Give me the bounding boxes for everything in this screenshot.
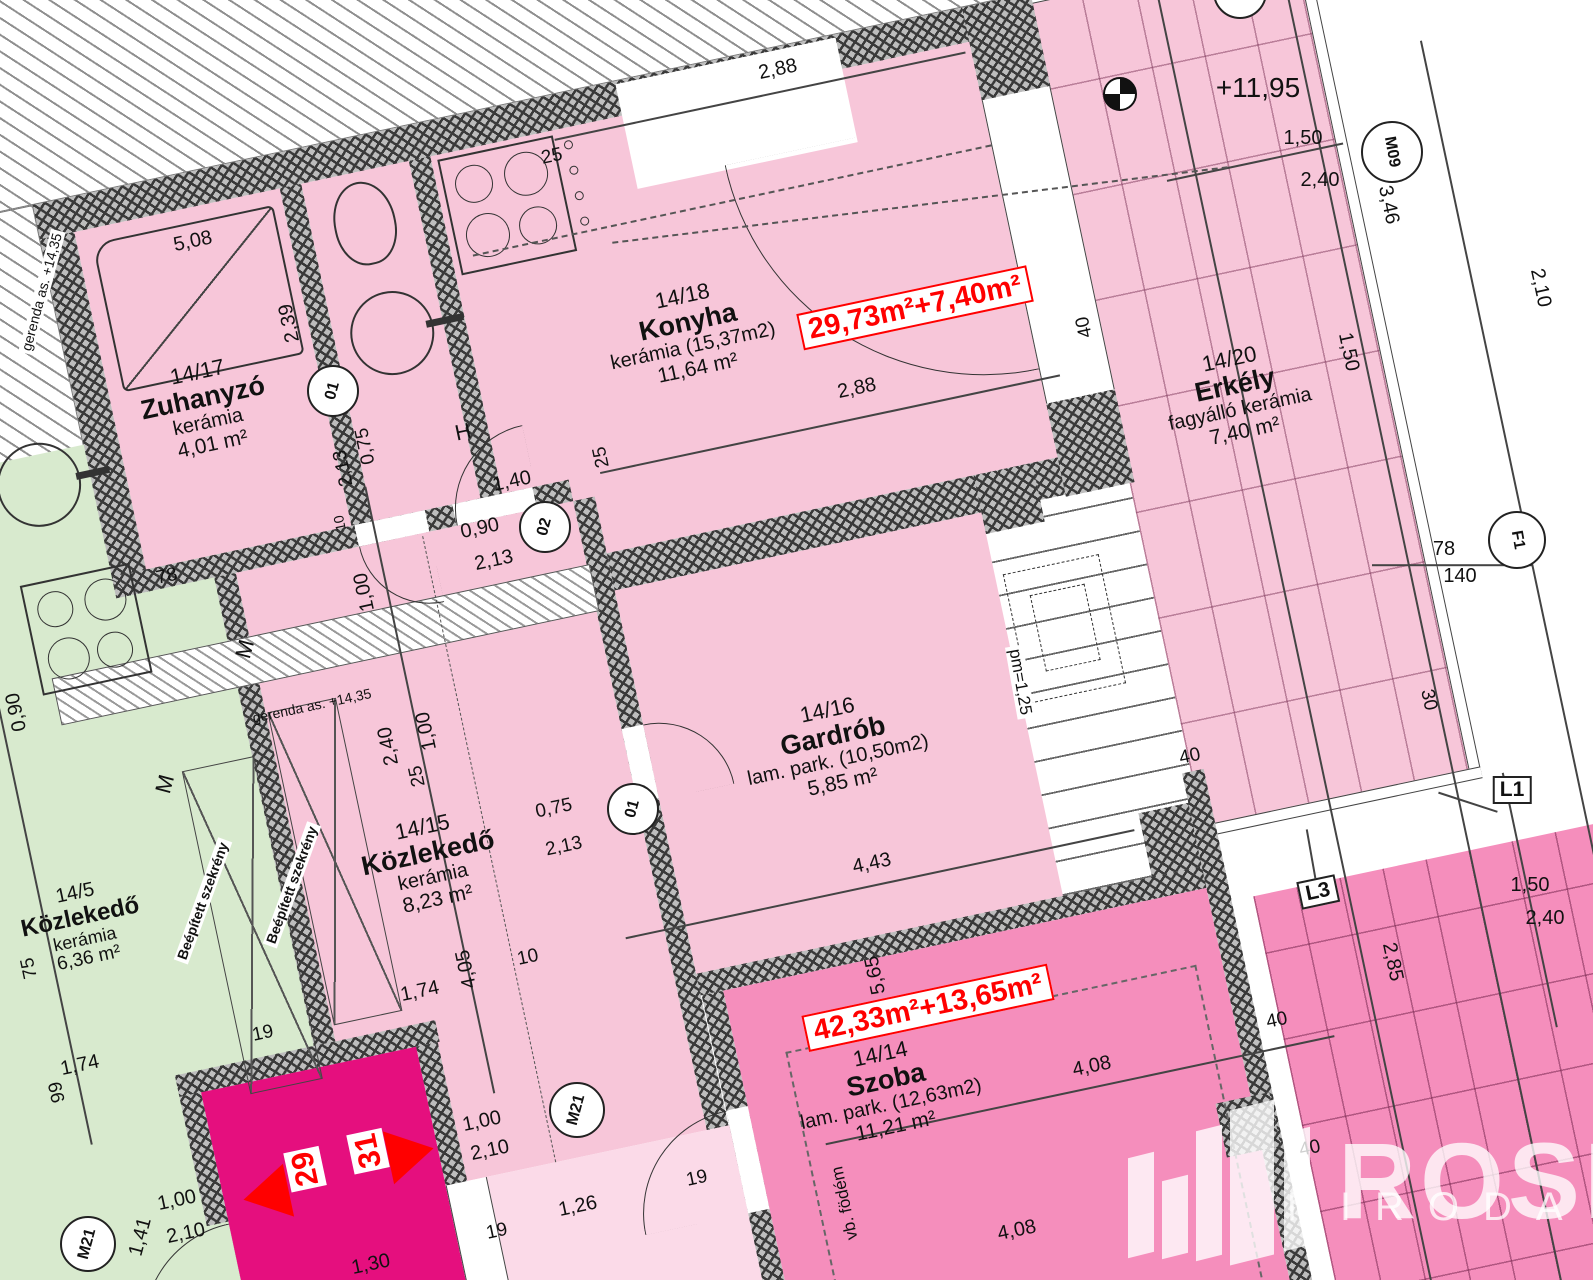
door-marker-label: 01 — [322, 380, 344, 402]
level-marker-icon — [1103, 77, 1137, 111]
window-marker-m09: M09 — [1361, 121, 1423, 183]
dim: 0,90 — [459, 514, 502, 543]
room-label-zuhanyzo: 14/17 Zuhanyzó kerámia 4,01 m² — [133, 347, 276, 468]
door-marker-label: 01 — [622, 798, 644, 820]
watermark-logo-bar — [1230, 1100, 1274, 1266]
dim: 40 — [1178, 745, 1203, 769]
dim: 5,65 — [861, 954, 890, 997]
room-label-erkely: 14/20 Erkély fagyálló kerámia 7,40 m² — [1156, 332, 1319, 457]
dim: 25 — [590, 445, 614, 470]
window-marker-label: M09 — [1380, 135, 1403, 169]
room-label-kozlekedo15: 14/15 Közlekedő kerámia 8,23 m² — [354, 801, 506, 924]
fridge-letter: H — [453, 419, 473, 446]
dim: 2,88 — [757, 55, 800, 84]
level-value: +11,95 — [1216, 73, 1300, 103]
dim: 5,08 — [172, 227, 215, 256]
machine-letter: M — [151, 772, 179, 796]
dim: 2,88 — [836, 374, 879, 403]
dim: 1,50 — [1511, 875, 1550, 897]
dim: 30 — [1416, 688, 1440, 713]
dim: 4,08 — [1071, 1052, 1114, 1081]
dim: 40 — [1073, 315, 1097, 340]
door-marker-02: 02 — [519, 501, 571, 553]
dim: 0,75 — [352, 426, 380, 466]
layer-marker-l3: L3 — [1296, 874, 1339, 909]
dim: 40 — [1265, 1009, 1290, 1033]
door-marker-label: M21 — [564, 1093, 589, 1128]
dim: 1,30 — [350, 1250, 393, 1279]
dim: 0,90 — [2, 691, 31, 734]
dim: 1,40 — [491, 467, 534, 496]
door-marker-01: 01 — [307, 365, 359, 417]
dim-chain-line — [1286, 0, 1564, 1280]
dim: 25 — [540, 145, 565, 169]
window-marker-f1: F1 — [1488, 511, 1546, 569]
watermark-logo-bar — [1284, 1127, 1310, 1251]
room-label-gardrob: 14/16 Gardrób lam. park. (10,50m2) 5,85 … — [735, 679, 936, 812]
arrow-left-icon — [238, 1164, 294, 1226]
floorplan-canvas: +11,95 14/17 Zuhanyzó kerámia 4,01 m² 14… — [0, 0, 1593, 1280]
dim: 2,85 — [1377, 941, 1406, 984]
dim: 19 — [685, 1167, 710, 1191]
marker-cut-top — [1213, 0, 1267, 19]
dim: 75 — [18, 956, 42, 981]
dim: 19 — [251, 1022, 276, 1046]
room-label-konyha: 14/18 Konyha kerámia (15,37m2) 11,64 m² — [598, 267, 782, 397]
dim: 78 — [1433, 539, 1455, 561]
dim: 140 — [1443, 566, 1476, 588]
dim: 2,10 — [1525, 267, 1554, 310]
door-marker-m21b: M21 — [549, 1082, 605, 1138]
closet-note-green: Beépített szekrény — [174, 837, 233, 964]
dim: 10 — [516, 946, 541, 970]
dim: 4,05 — [452, 948, 481, 991]
dim: 2,40 — [1301, 170, 1340, 192]
door-marker-01b: 01 — [607, 783, 659, 835]
closet-note-pink: Beépített szekrény — [263, 821, 322, 948]
slab-note: vb. födém — [828, 1165, 861, 1242]
dim: 2,13 — [330, 448, 358, 488]
dim: 1,26 — [557, 1192, 600, 1221]
dim-line-l1 — [1502, 773, 1558, 1028]
dim: 99 — [46, 1080, 70, 1105]
dim: 1,50 — [1284, 128, 1323, 150]
dim: 2,10 — [165, 1219, 208, 1248]
dim: 1,00 — [412, 710, 441, 753]
axis-dash-line-top — [612, 166, 1228, 244]
watermark-logo-bar — [1128, 1152, 1154, 1258]
dim: 25 — [406, 764, 430, 789]
area-total-upper: 29,73m²+7,40m² — [796, 265, 1033, 350]
watermark-logo-bar — [1196, 1125, 1222, 1261]
arrow-right-icon — [383, 1122, 439, 1184]
dim: 1,00 — [350, 571, 379, 614]
dim: 0,75 — [534, 795, 574, 823]
dim: 4,08 — [996, 1216, 1039, 1245]
watermark-logo-bar — [1162, 1175, 1188, 1259]
layer-marker-l1: L1 — [1493, 776, 1532, 804]
window-marker-label: F1 — [1507, 529, 1528, 551]
dim: 78 — [155, 565, 180, 589]
leader-line-l1 — [1438, 792, 1497, 813]
dim: 1,41 — [126, 1215, 157, 1258]
beam-note-corridor: gerenda as. +14,35 — [251, 686, 373, 726]
annotation-layer: +11,95 14/17 Zuhanyzó kerámia 4,01 m² 14… — [0, 0, 1593, 1280]
dim: 1,74 — [59, 1051, 102, 1080]
door-marker-m21a: M21 — [60, 1216, 116, 1272]
dim: 1,50 — [1333, 331, 1362, 374]
door-marker-label: 02 — [534, 516, 556, 538]
dim: 2,10 — [469, 1136, 512, 1165]
unit-number-29: 29 — [283, 1145, 327, 1192]
dim-line-gardrob — [626, 829, 1135, 939]
dim-line-konyha — [600, 374, 1060, 473]
dim: 10 — [331, 514, 349, 532]
dim: 2,40 — [1526, 908, 1565, 930]
parapet-note: pm=1,25 — [1005, 645, 1036, 720]
door-marker-label: M21 — [75, 1227, 100, 1262]
beam-note-left: gerenda as. +14,35 — [18, 229, 65, 356]
machine-letter: M — [231, 637, 259, 661]
dim: 1,00 — [156, 1186, 199, 1215]
dim: 3,46 — [1373, 184, 1402, 227]
dim: 1,00 — [461, 1107, 504, 1136]
dim: 19 — [485, 1220, 510, 1244]
dim: 2,13 — [473, 546, 516, 575]
dim-line-corridor — [365, 487, 495, 1094]
dim: 2,13 — [544, 833, 584, 861]
dim: 2,39 — [275, 302, 304, 345]
dim: 2,40 — [374, 725, 403, 768]
dim: 4,43 — [851, 849, 894, 878]
dim: 1,74 — [399, 977, 442, 1006]
